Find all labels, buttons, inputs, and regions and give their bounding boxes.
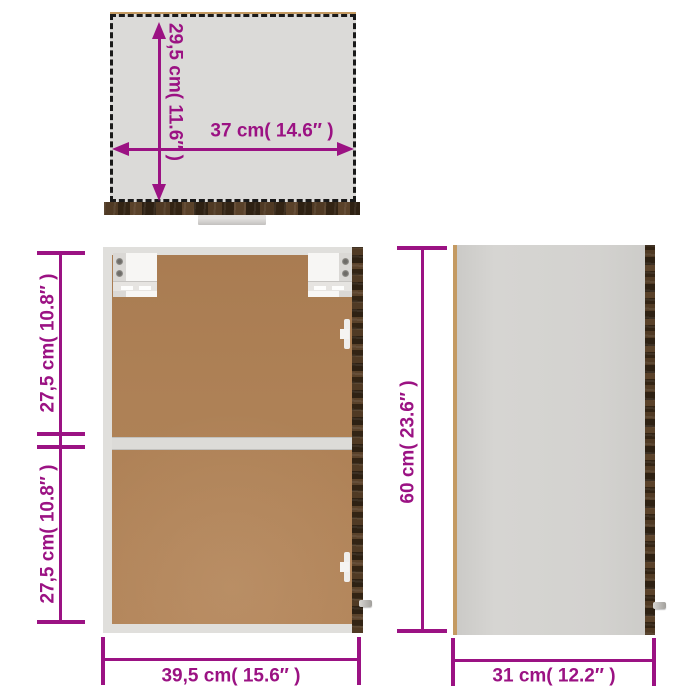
top-depth-arrow-shaft bbox=[158, 38, 161, 186]
top-depth-label: 29,5 cm( 11.6″ ) bbox=[166, 23, 185, 161]
bracket-slot bbox=[139, 286, 151, 290]
front-view bbox=[103, 247, 363, 633]
top-width-arrow-shaft bbox=[118, 148, 348, 151]
dim-tick bbox=[397, 629, 447, 633]
dim-tick bbox=[37, 251, 85, 255]
dim-line bbox=[453, 659, 655, 662]
dim-tick bbox=[451, 638, 455, 686]
side-height-label: 60 cm( 23.6″ ) bbox=[399, 380, 418, 503]
screw-icon bbox=[116, 270, 123, 277]
screw-icon bbox=[342, 258, 349, 265]
dim-line bbox=[421, 248, 424, 631]
dim-line bbox=[103, 658, 361, 661]
product-dimension-diagram: 29,5 cm( 11.6″ ) 37 cm( 14.6″ ) bbox=[0, 0, 700, 700]
screw-icon bbox=[116, 258, 123, 265]
dim-tick bbox=[357, 637, 361, 685]
dim-line bbox=[59, 253, 62, 624]
arrow-right-icon bbox=[337, 142, 354, 156]
bracket-rail bbox=[308, 281, 352, 291]
wall-mount-bracket-right bbox=[308, 253, 352, 297]
dim-tick bbox=[37, 445, 85, 449]
side-door-edge-wood bbox=[645, 245, 655, 635]
top-view-front-edge-wood bbox=[104, 202, 360, 215]
dim-tick bbox=[397, 246, 447, 250]
top-view-dashed-outline bbox=[110, 14, 356, 202]
wall-mount-bracket-left bbox=[113, 253, 157, 297]
hinge-top bbox=[344, 319, 350, 349]
dim-tick bbox=[652, 638, 656, 686]
bracket-slot bbox=[121, 286, 133, 290]
bracket-slot bbox=[332, 286, 344, 290]
dim-tick bbox=[101, 637, 105, 685]
hinge-bottom bbox=[344, 552, 350, 582]
side-view bbox=[453, 245, 655, 635]
door-knob-front bbox=[359, 600, 372, 607]
top-width-label: 37 cm( 14.6″ ) bbox=[210, 122, 333, 141]
arrow-left-icon bbox=[112, 142, 129, 156]
front-width-label: 39,5 cm( 15.6″ ) bbox=[161, 667, 300, 686]
door-handle-top-view bbox=[198, 215, 266, 225]
screw-icon bbox=[342, 270, 349, 277]
middle-shelf bbox=[112, 437, 352, 450]
top-view: 29,5 cm( 11.6″ ) 37 cm( 14.6″ ) bbox=[110, 12, 356, 225]
side-depth-label: 31 cm( 12.2″ ) bbox=[492, 667, 615, 686]
side-panel bbox=[457, 245, 645, 635]
dim-tick bbox=[37, 432, 85, 436]
arrow-down-icon bbox=[152, 184, 166, 201]
bracket-slot bbox=[314, 286, 326, 290]
dim-tick bbox=[37, 620, 85, 624]
front-lower-height-label: 27,5 cm( 10.8″ ) bbox=[39, 464, 58, 603]
front-upper-height-label: 27,5 cm( 10.8″ ) bbox=[39, 273, 58, 412]
door-knob-side bbox=[653, 602, 666, 609]
bracket-rail bbox=[113, 281, 157, 291]
front-door-edge-wood bbox=[352, 247, 363, 633]
